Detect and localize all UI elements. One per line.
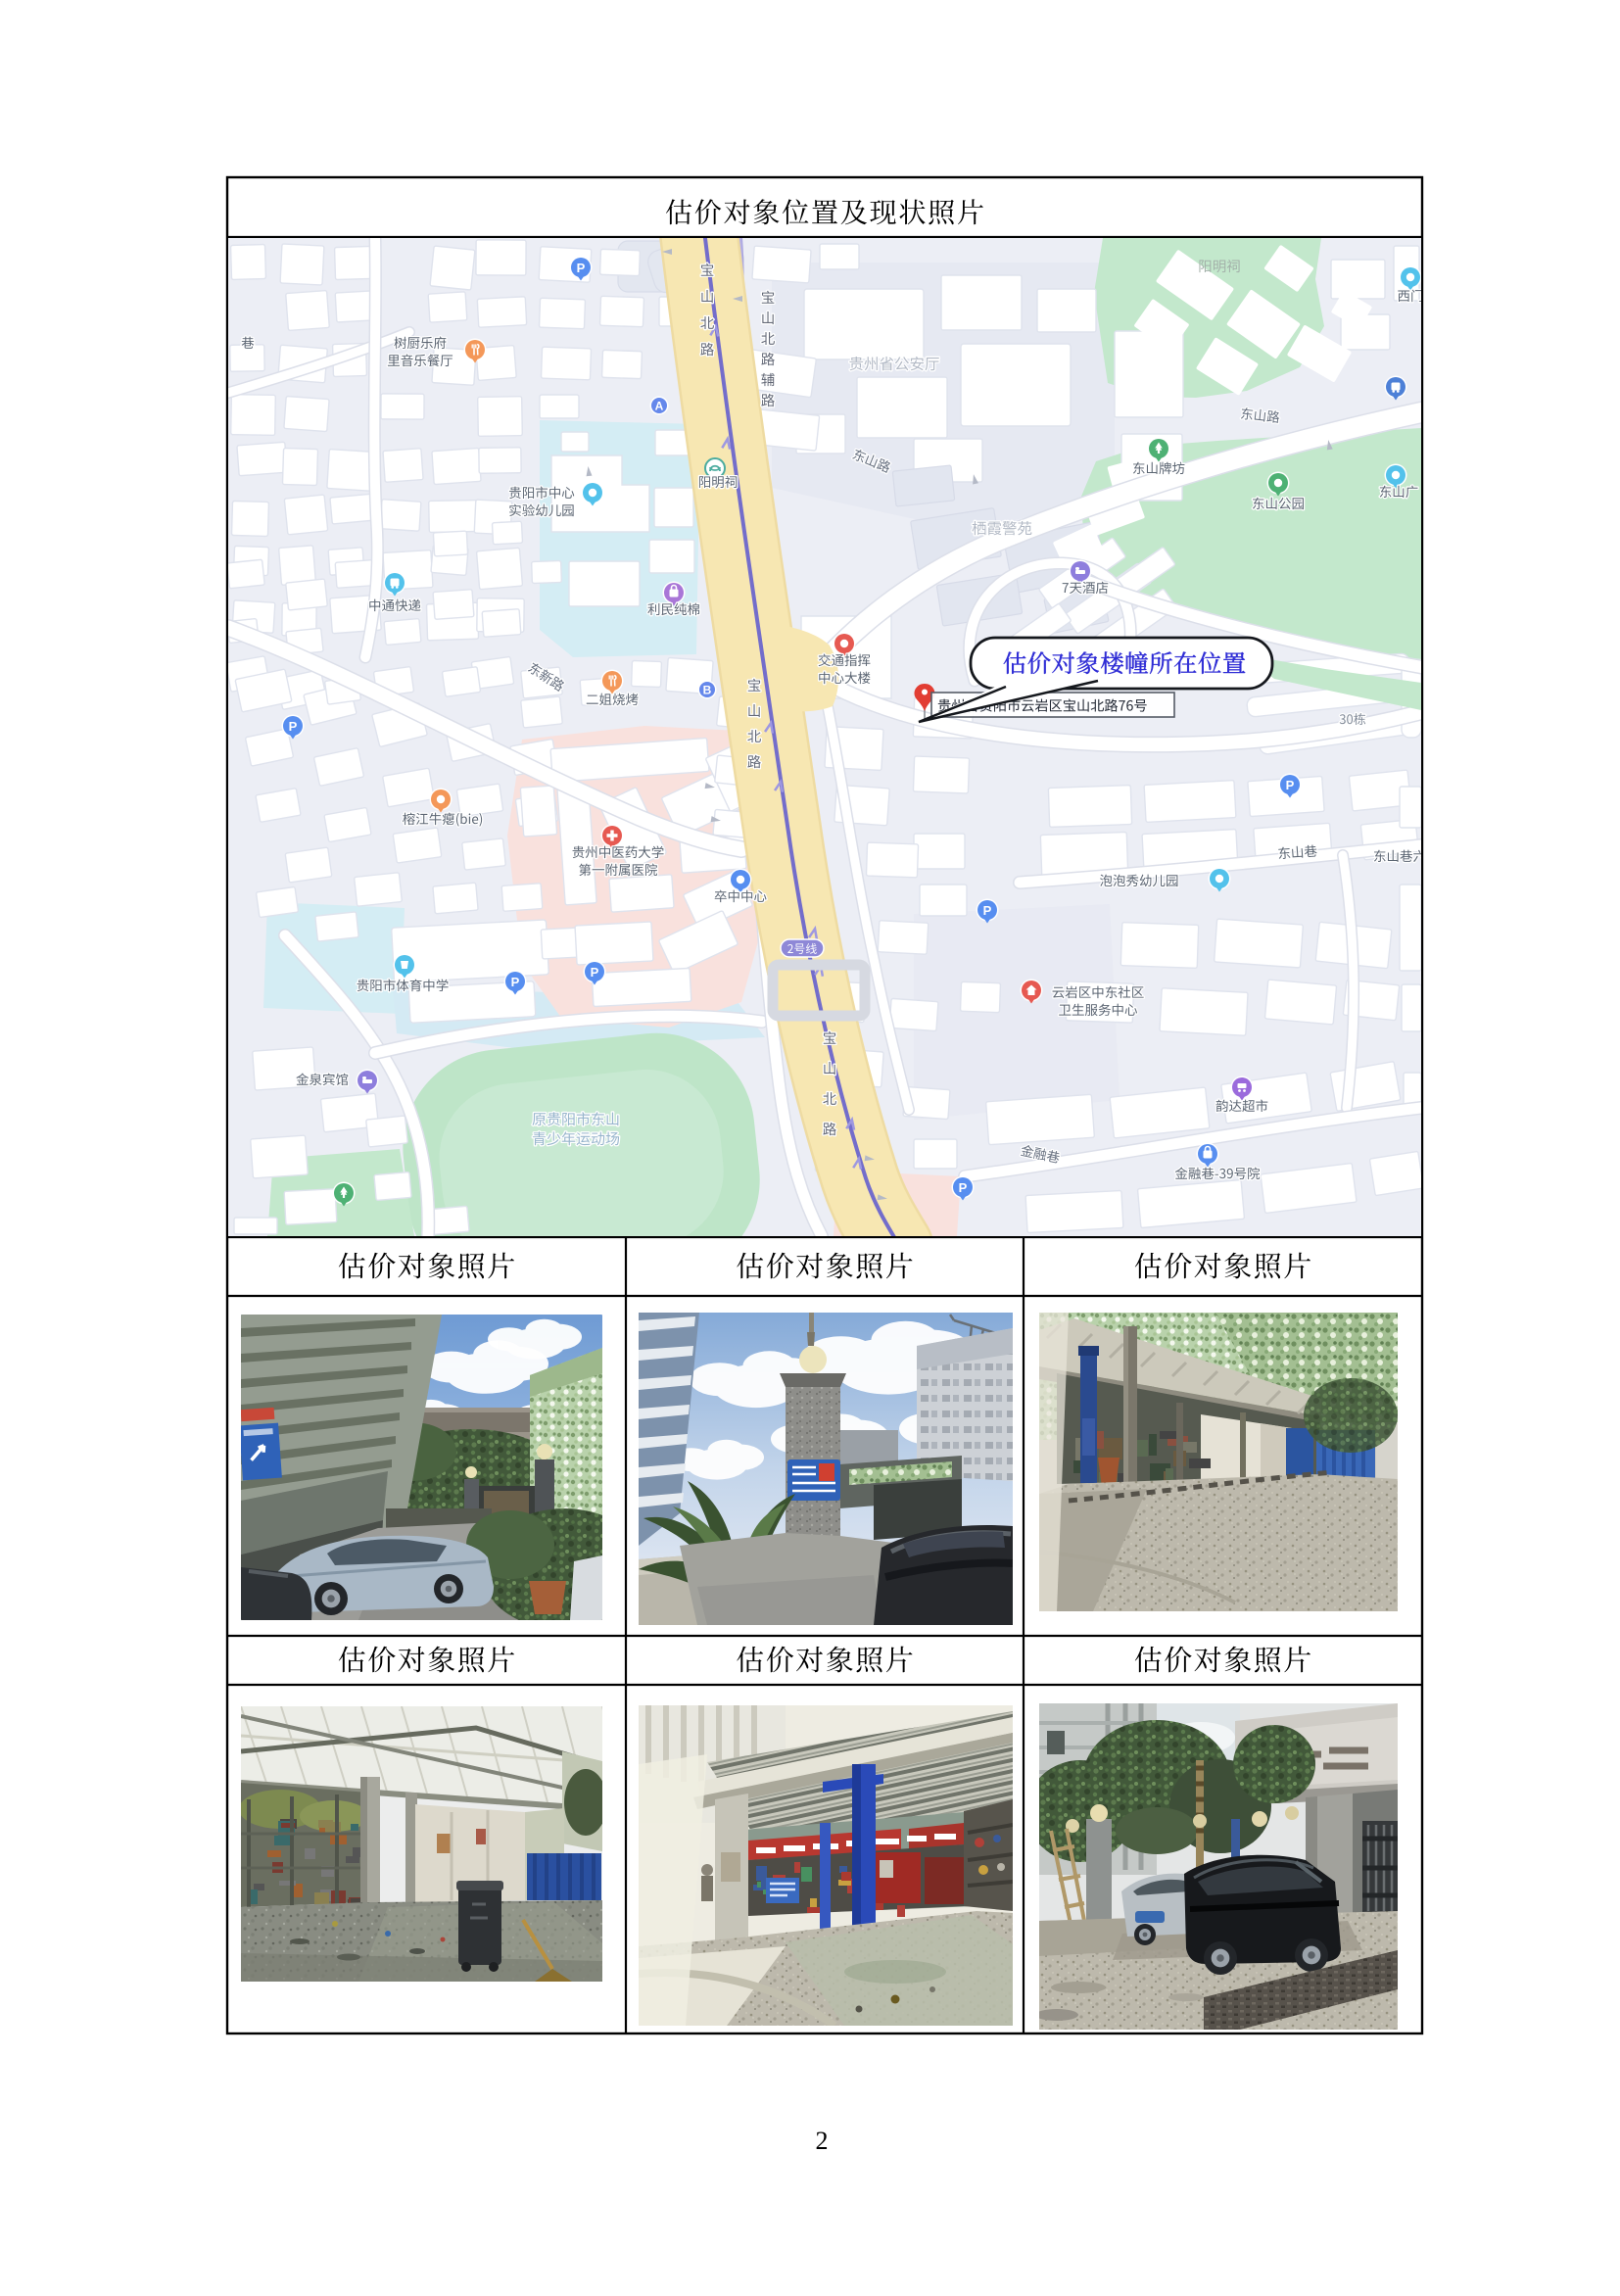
svg-text:2: 2: [816, 2127, 829, 2155]
